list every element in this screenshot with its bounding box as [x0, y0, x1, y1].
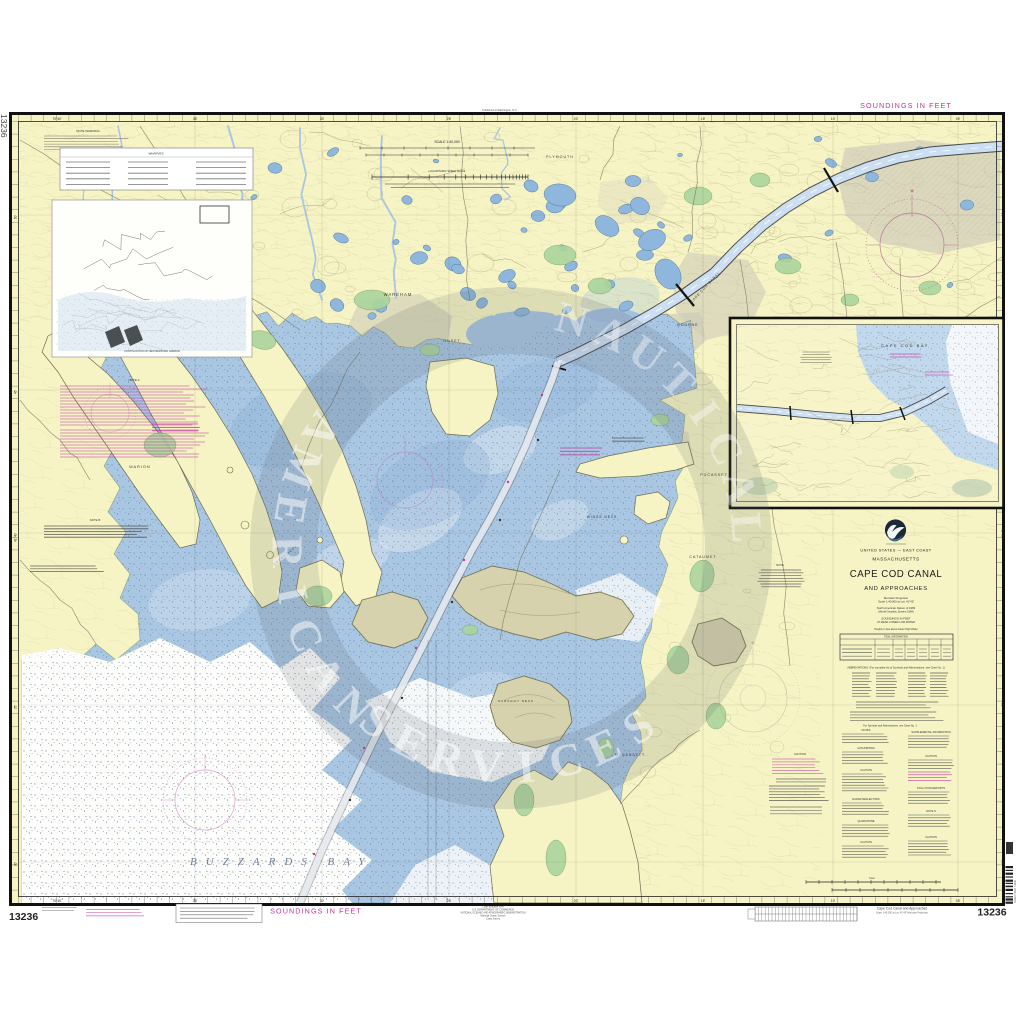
svg-text:70°40': 70°40': [53, 899, 62, 903]
svg-text:MASSACHUSETTS: MASSACHUSETTS: [872, 557, 919, 562]
svg-text:20': 20': [574, 117, 579, 121]
svg-text:50': 50': [1001, 213, 1005, 218]
svg-text:15': 15': [701, 899, 706, 903]
svg-text:NOTE B: NOTE B: [90, 518, 101, 522]
svg-text:Heights in feet above Mean Hig: Heights in feet above Mean High Water: [874, 628, 918, 631]
svg-text:35': 35': [193, 117, 198, 121]
svg-text:POLLUTION REPORTS: POLLUTION REPORTS: [917, 786, 945, 790]
svg-text:For Symbols and Abbreviations,: For Symbols and Abbreviations, see Chart…: [863, 725, 917, 728]
svg-text:SOUNDINGS IN FEET: SOUNDINGS IN FEET: [860, 101, 952, 110]
svg-text:TIDAL INFORMATION: TIDAL INFORMATION: [884, 636, 908, 639]
svg-text:SOUNDINGS IN FEET: SOUNDINGS IN FEET: [881, 617, 911, 621]
svg-text:NOTE A: NOTE A: [128, 378, 139, 382]
svg-text:30': 30': [14, 862, 18, 867]
svg-text:Cape Cod Canal and Approaches: Cape Cod Canal and Approaches: [877, 907, 928, 911]
svg-text:50': 50': [14, 215, 18, 220]
svg-text:CAUTION: CAUTION: [925, 835, 937, 839]
svg-text:13236: 13236: [977, 907, 1006, 919]
svg-text:SOUNDINGS IN FEET: SOUNDINGS IN FEET: [270, 907, 362, 916]
svg-text:AND APPROACHES: AND APPROACHES: [864, 586, 928, 592]
svg-text:10': 10': [831, 117, 836, 121]
svg-text:25': 25': [447, 117, 452, 121]
svg-text:CAPE COD BAY: CAPE COD BAY: [881, 343, 929, 348]
svg-text:Published at Washington, D.C.: Published at Washington, D.C.: [482, 108, 518, 112]
svg-text:41°40': 41°40': [1001, 529, 1005, 538]
svg-text:CONTINUATION OF NEW BEDFORD HA: CONTINUATION OF NEW BEDFORD HARBOR: [124, 349, 180, 353]
svg-text:05': 05': [956, 117, 961, 121]
svg-text:CAUTION: CAUTION: [925, 754, 937, 758]
svg-text:North American Datum of 1983: North American Datum of 1983: [877, 606, 916, 610]
svg-text:V: V: [467, 739, 505, 793]
svg-text:R: R: [263, 536, 313, 570]
svg-text:✷: ✷: [909, 188, 914, 195]
svg-text:NOTE: NOTE: [776, 563, 784, 567]
svg-text:41°40': 41°40': [14, 533, 18, 542]
svg-text:U.S. DEPARTMENT OF COMMERCE: U.S. DEPARTMENT OF COMMERCE: [472, 909, 515, 912]
svg-text:20': 20': [574, 899, 579, 903]
svg-text:SUPPLEMENTAL INFORMATION: SUPPLEMENTAL INFORMATION: [911, 730, 950, 734]
svg-text:25': 25': [447, 899, 452, 903]
svg-text:CAUTION: CAUTION: [794, 752, 806, 756]
svg-text:MARION: MARION: [129, 465, 150, 469]
svg-text:Feet: Feet: [869, 876, 874, 880]
svg-text:10': 10': [831, 899, 836, 903]
svg-text:SCALE 1:40,000: SCALE 1:40,000: [434, 140, 459, 144]
svg-text:WINGS NECK: WINGS NECK: [587, 515, 618, 519]
svg-text:UNITED STATES — EAST COAST: UNITED STATES — EAST COAST: [860, 548, 931, 553]
svg-text:NOTE S: NOTE S: [926, 809, 936, 813]
svg-text:Coast Survey: Coast Survey: [486, 918, 501, 921]
svg-text:CAUTION: CAUTION: [860, 768, 872, 772]
svg-text:Scale 1:40,000 at Lat. 41°45': Scale 1:40,000 at Lat. 41°45' Mercator P…: [876, 912, 929, 915]
svg-text:AUTHORITIES: AUTHORITIES: [857, 746, 875, 750]
svg-text:NOAA CHART 13236: NOAA CHART 13236: [1014, 880, 1017, 903]
svg-text:CAPE COD CANAL: CAPE COD CANAL: [850, 569, 943, 580]
svg-text:45': 45': [14, 390, 18, 395]
svg-text:National Ocean Service: National Ocean Service: [480, 915, 506, 918]
svg-text:NOTES: NOTES: [862, 728, 871, 732]
svg-text:Scale 1:40,000 at Lat. 41°45': Scale 1:40,000 at Lat. 41°45': [878, 600, 914, 604]
svg-text:15': 15': [701, 117, 706, 121]
svg-text:L: L: [721, 511, 772, 545]
svg-text:RADAR REFLECTORS: RADAR REFLECTORS: [852, 797, 879, 801]
svg-text:35': 35': [193, 899, 198, 903]
svg-text:LOGARITHMIC SPEED SCALE: LOGARITHMIC SPEED SCALE: [429, 169, 466, 173]
svg-text:ABBREVIATIONS (For complete l: ABBREVIATIONS (For complete list of Symb…: [847, 666, 945, 670]
svg-text:PLYMOUTH: PLYMOUTH: [546, 155, 574, 159]
svg-text:NOTE WARNING: NOTE WARNING: [76, 129, 100, 133]
svg-text:SCRAGGY NECK: SCRAGGY NECK: [498, 699, 534, 703]
svg-text:35': 35': [1001, 703, 1005, 708]
svg-text:13236: 13236: [9, 911, 38, 923]
svg-text:13236: 13236: [0, 114, 9, 138]
svg-text:AT MEAN LOWER LOW WATER: AT MEAN LOWER LOW WATER: [877, 620, 915, 624]
svg-text:(World Geodetic System 1984): (World Geodetic System 1984): [878, 610, 914, 614]
svg-text:05': 05': [956, 899, 961, 903]
svg-text:QUARANTINE: QUARANTINE: [857, 819, 874, 823]
svg-text:30': 30': [320, 117, 325, 121]
svg-text:WAREHAM: WAREHAM: [384, 292, 413, 297]
svg-text:35': 35': [14, 705, 18, 710]
svg-text:30': 30': [320, 899, 325, 903]
svg-text:30': 30': [1001, 860, 1005, 865]
svg-text:BOURNE: BOURNE: [677, 323, 698, 327]
svg-text:CAUTION: CAUTION: [860, 840, 872, 844]
svg-text:WHARVES: WHARVES: [148, 152, 163, 156]
svg-text:I: I: [516, 741, 537, 793]
svg-text:BUZZARDS BAY: BUZZARDS BAY: [190, 856, 373, 868]
svg-text:70°40': 70°40': [53, 117, 62, 121]
